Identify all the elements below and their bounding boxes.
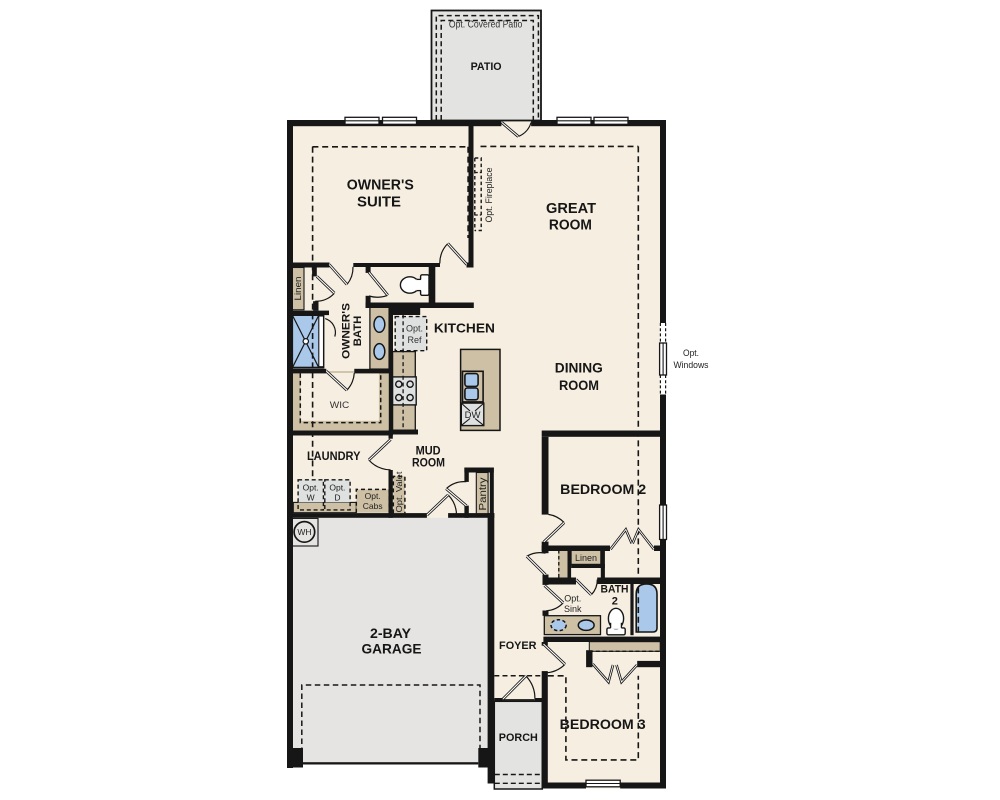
svg-text:2: 2 — [612, 596, 618, 608]
svg-text:BEDROOM 3: BEDROOM 3 — [560, 717, 647, 732]
svg-text:Sink: Sink — [564, 604, 582, 614]
svg-text:FOYER: FOYER — [499, 640, 537, 652]
svg-text:WIC: WIC — [330, 400, 350, 411]
svg-text:DINING: DINING — [555, 360, 603, 375]
svg-text:DW: DW — [465, 410, 481, 421]
svg-text:Opt. Covered Patio: Opt. Covered Patio — [449, 20, 523, 31]
svg-text:Opt.: Opt. — [564, 594, 581, 604]
svg-text:D: D — [334, 493, 340, 503]
svg-text:WH: WH — [297, 527, 311, 537]
svg-text:KITCHEN: KITCHEN — [434, 322, 495, 336]
svg-text:BATH: BATH — [601, 583, 629, 595]
svg-text:Opt.: Opt. — [406, 324, 423, 334]
svg-text:GREAT: GREAT — [546, 201, 596, 217]
svg-text:ROOM: ROOM — [549, 218, 592, 234]
svg-text:Opt.: Opt. — [365, 491, 381, 501]
svg-text:Ref: Ref — [407, 335, 422, 345]
svg-text:Opt. Fireplace: Opt. Fireplace — [484, 168, 495, 223]
svg-text:Opt. Valet: Opt. Valet — [394, 471, 404, 513]
svg-text:OWNER'S: OWNER'S — [347, 178, 414, 194]
svg-text:BEDROOM 2: BEDROOM 2 — [560, 482, 646, 497]
svg-text:Opt.: Opt. — [329, 483, 345, 493]
svg-text:Windows: Windows — [674, 360, 709, 371]
svg-text:LAUNDRY: LAUNDRY — [307, 451, 361, 463]
svg-text:GARAGE: GARAGE — [362, 641, 422, 657]
svg-text:PORCH: PORCH — [499, 732, 538, 744]
svg-text:ROOM: ROOM — [559, 378, 599, 393]
svg-text:Cabs: Cabs — [363, 501, 383, 511]
svg-text:2-BAY: 2-BAY — [370, 625, 412, 641]
svg-text:ROOM: ROOM — [412, 457, 445, 469]
svg-text:Linen: Linen — [575, 553, 597, 563]
svg-text:Opt.: Opt. — [303, 483, 319, 493]
svg-text:OWNER'S: OWNER'S — [340, 303, 352, 359]
svg-text:Linen: Linen — [293, 277, 304, 301]
svg-text:SUITE: SUITE — [357, 195, 401, 211]
svg-text:BATH: BATH — [352, 316, 364, 347]
svg-text:W: W — [307, 493, 315, 503]
svg-text:Opt.: Opt. — [683, 348, 699, 359]
svg-text:Pantry: Pantry — [478, 478, 489, 511]
svg-text:PATIO: PATIO — [471, 61, 502, 73]
svg-text:MUD: MUD — [416, 445, 441, 457]
